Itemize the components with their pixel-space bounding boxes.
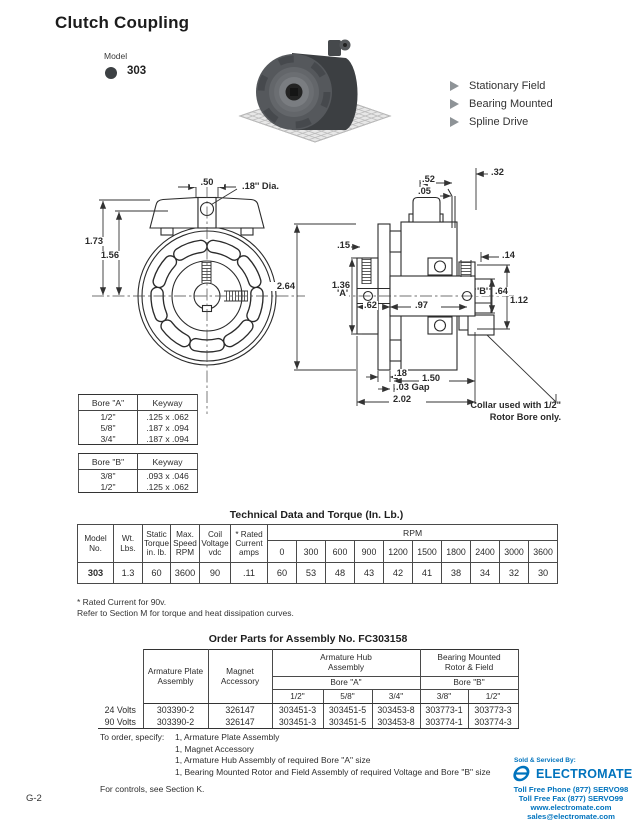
order-note-item: 1, Magnet Accessory [175, 744, 491, 756]
col-header-rpm: RPM [268, 525, 558, 541]
cell: 3/4" [79, 433, 138, 445]
feature-list: Stationary Field Bearing Mounted Spline … [450, 77, 553, 131]
order-table-title: Order Parts for Assembly No. FC303158 [98, 633, 518, 645]
col-header: Bore "A" [79, 395, 138, 411]
col-header: 3/4" [372, 690, 420, 704]
cell: 326147 [208, 716, 272, 729]
cell: 60 [268, 563, 297, 584]
dim-label: 'A' [336, 289, 349, 298]
cell: .125 x .062 [138, 411, 198, 423]
dim-label: .03 Gap [395, 383, 431, 392]
dim-label: 2.02 [392, 395, 412, 404]
cell: 303453-8 [372, 716, 420, 729]
dim-label: .97 [414, 301, 429, 310]
cell: 42 [384, 563, 413, 584]
col-header: 3000 [500, 541, 529, 563]
col-header: Keyway [138, 454, 198, 470]
table-row: Model No. Wt. Lbs. Static Torque in. lb.… [78, 525, 558, 541]
cell: 38 [442, 563, 471, 584]
table-row: 90 Volts 303390-2 326147 303451-3 303451… [98, 716, 518, 729]
cell: 60 [143, 563, 171, 584]
dim-label: .52 [421, 175, 436, 184]
product-photo [232, 32, 398, 152]
dim-label: .18 [393, 369, 408, 378]
col-header: 900 [355, 541, 384, 563]
cell: 48 [326, 563, 355, 584]
order-note-items: 1, Armature Plate Assembly 1, Magnet Acc… [175, 732, 491, 778]
feature-label: Stationary Field [469, 80, 545, 92]
dim-label: .64 [494, 287, 509, 296]
cell: 303451-5 [323, 716, 372, 729]
triangle-right-icon [450, 81, 459, 91]
cell: 34 [471, 563, 500, 584]
col-header: 600 [326, 541, 355, 563]
col-header: 1800 [442, 541, 471, 563]
cell: 303451-3 [272, 716, 323, 729]
cell: 303390-2 [143, 716, 208, 729]
feature-label: Bearing Mounted [469, 98, 553, 110]
cell: 303390-2 [143, 704, 208, 717]
table-row: 3/8" .093 x .046 [79, 470, 198, 482]
cell: 3600 [171, 563, 200, 584]
feature-item: Bearing Mounted [450, 95, 553, 113]
col-header: Bore "B" [79, 454, 138, 470]
dim-label: .32 [490, 168, 505, 177]
triangle-right-icon [450, 117, 459, 127]
dim-label: 1.56 [92, 251, 120, 260]
triangle-right-icon [450, 99, 459, 109]
cell: .093 x .046 [138, 470, 198, 482]
cell: 43 [355, 563, 384, 584]
col-header-group: Bearing Mounted Rotor & Field [420, 650, 518, 677]
col-header: Magnet Accessory [208, 650, 272, 704]
cell: 1/2" [79, 481, 138, 493]
cell: 24 Volts [98, 704, 143, 717]
cell: 303773-1 [420, 704, 468, 717]
catalog-page: Clutch Coupling Model 303 Stationary Fie… [0, 0, 638, 826]
col-header: Bore "A" [272, 677, 420, 690]
table-row: 303 1.3 60 3600 90 .11 60 53 48 43 42 41… [78, 563, 558, 584]
col-header: Wt. Lbs. [114, 525, 143, 563]
dim-label: 2.64 [264, 282, 296, 291]
table-row: 3/4" .187 x .094 [79, 433, 198, 445]
table-row: Bore "A" Keyway [79, 395, 198, 411]
vendor-phone: Toll Free Phone (877) SERVO98 [506, 785, 636, 794]
order-note-item: 1, Armature Hub Assembly of required Bor… [175, 755, 491, 767]
cell: 303 [78, 563, 114, 584]
feature-item: Spline Drive [450, 113, 553, 131]
cell: 3/8" [79, 470, 138, 482]
cell: 90 [200, 563, 231, 584]
model-number: 303 [127, 65, 146, 77]
cell: .187 x .094 [138, 433, 198, 445]
order-note-item: 1, Armature Plate Assembly [175, 732, 491, 744]
filled-circle-icon [105, 67, 117, 79]
col-header: Bore "B" [420, 677, 518, 690]
dim-label: 1.12 [509, 296, 529, 305]
controls-note: For controls, see Section K. [100, 784, 204, 794]
col-header: 2400 [471, 541, 500, 563]
col-header: Keyway [138, 395, 198, 411]
vendor-email-link[interactable]: sales@electromate.com [506, 812, 636, 821]
cell: 303451-5 [323, 704, 372, 717]
cell: 326147 [208, 704, 272, 717]
col-header: 3/8" [420, 690, 468, 704]
col-header: 5/8" [323, 690, 372, 704]
col-header: 3600 [529, 541, 558, 563]
tech-data-table: Model No. Wt. Lbs. Static Torque in. lb.… [77, 524, 558, 584]
page-number: G-2 [26, 793, 42, 804]
collar-note: Collar used with 1/2" Rotor Bore only. [434, 400, 562, 423]
sold-by-label: Sold & Serviced By: [514, 757, 636, 764]
feature-label: Spline Drive [469, 116, 528, 128]
cell: .125 x .062 [138, 481, 198, 493]
table-row: 24 Volts 303390-2 326147 303451-3 303451… [98, 704, 518, 717]
footnote: Refer to Section M for torque and heat d… [77, 608, 294, 618]
cell: 1.3 [114, 563, 143, 584]
cell: 5/8" [79, 422, 138, 433]
cell: 41 [413, 563, 442, 584]
table-row: Bore "B" Keyway [79, 454, 198, 470]
cell: 30 [529, 563, 558, 584]
vendor-website-link[interactable]: www.electromate.com [506, 803, 636, 812]
col-header: Static Torque in. lb. [143, 525, 171, 563]
cell: 90 Volts [98, 716, 143, 729]
electromate-e-icon [512, 765, 532, 782]
col-header: 1/2" [468, 690, 518, 704]
order-note-item: 1, Bearing Mounted Rotor and Field Assem… [175, 767, 491, 779]
col-header-group: Armature Hub Assembly [272, 650, 420, 677]
cell: 303453-8 [372, 704, 420, 717]
footnote: * Rated Current for 90v. [77, 597, 166, 607]
dim-label: .18'' Dia. [241, 182, 280, 191]
cell: 1/2" [79, 411, 138, 423]
cell: 53 [297, 563, 326, 584]
feature-item: Stationary Field [450, 77, 553, 95]
dim-label: 1.50 [421, 374, 441, 383]
dim-label: 1.73 [76, 237, 104, 246]
cell: .187 x .094 [138, 422, 198, 433]
cell: 303774-3 [468, 716, 518, 729]
cell: 32 [500, 563, 529, 584]
col-header: Max. Speed RPM [171, 525, 200, 563]
cell: 303774-1 [420, 716, 468, 729]
model-label: Model [104, 51, 127, 61]
col-header: 1200 [384, 541, 413, 563]
cell [98, 650, 143, 704]
col-header: Model No. [78, 525, 114, 563]
cell: .11 [231, 563, 268, 584]
dim-label: .50 [190, 178, 224, 187]
order-parts-table: Armature Plate Assembly Magnet Accessory… [98, 649, 519, 729]
col-header: Coil Voltage vdc [200, 525, 231, 563]
col-header: 300 [297, 541, 326, 563]
bore-b-table: Bore "B" Keyway 3/8" .093 x .046 1/2" .1… [78, 453, 198, 493]
dim-label: .05 [417, 187, 432, 196]
col-header: 1/2" [272, 690, 323, 704]
bore-a-table: Bore "A" Keyway 1/2" .125 x .062 5/8" .1… [78, 394, 198, 445]
col-header: 0 [268, 541, 297, 563]
col-header: * Rated Current amps [231, 525, 268, 563]
order-note-label: To order, specify: [100, 732, 164, 742]
table-row: 1/2" .125 x .062 [79, 481, 198, 493]
dim-label: .14 [501, 251, 516, 260]
vendor-block: Sold & Serviced By: ELECTROMATE Toll Fre… [506, 757, 636, 821]
table-row: 5/8" .187 x .094 [79, 422, 198, 433]
table-row: Armature Plate Assembly Magnet Accessory… [98, 650, 518, 677]
cell: 303451-3 [272, 704, 323, 717]
dim-label: 'B' [476, 287, 489, 296]
cell: 303773-3 [468, 704, 518, 717]
col-header: Armature Plate Assembly [143, 650, 208, 704]
vendor-name: ELECTROMATE [536, 767, 632, 781]
dim-label: .15 [329, 241, 351, 250]
col-header: 1500 [413, 541, 442, 563]
dim-label: .62 [363, 301, 378, 310]
page-title: Clutch Coupling [55, 13, 189, 33]
table-row: 1/2" .125 x .062 [79, 411, 198, 423]
tech-table-title: Technical Data and Torque (In. Lb.) [77, 509, 556, 521]
vendor-fax: Toll Free Fax (877) SERVO99 [506, 794, 636, 803]
